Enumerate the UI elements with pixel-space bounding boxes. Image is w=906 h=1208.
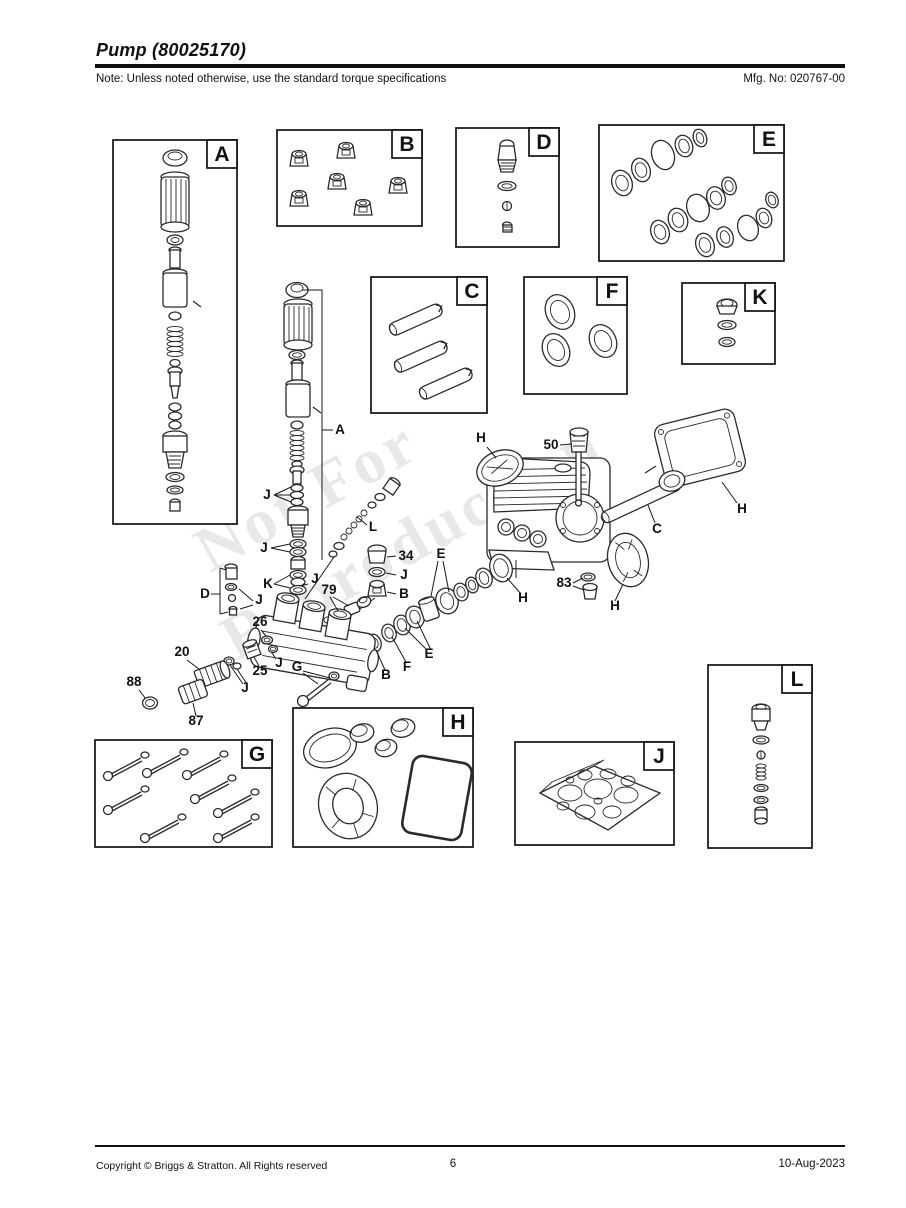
- callout-87: 87: [188, 713, 203, 728]
- inset-box-h: H: [293, 708, 473, 847]
- inset-letter-d: D: [536, 131, 551, 154]
- callout-E-lower: E: [424, 646, 433, 661]
- callout-K: K: [263, 576, 273, 591]
- callout-26: 26: [252, 614, 268, 629]
- inset-letter-k: K: [752, 286, 767, 309]
- callout-J-6: J: [275, 655, 283, 670]
- callout-H-seal-right: H: [610, 598, 620, 613]
- callout-88: 88: [126, 674, 142, 689]
- plug-kit-drawing: [717, 299, 737, 347]
- parts-diagram: Not For Reproduction A: [0, 0, 906, 1208]
- callout-J-3: J: [400, 567, 408, 582]
- callout-A: A: [335, 422, 345, 437]
- inset-box-f: F: [524, 277, 627, 394]
- inset-box-e: E: [599, 125, 784, 261]
- callout-J-1: J: [263, 487, 271, 502]
- inset-letter-f: F: [606, 280, 619, 303]
- catalog-page: Pump (80025170) Note: Unless noted other…: [0, 0, 906, 1208]
- callout-83: 83: [556, 575, 572, 590]
- callout-H-ovalcap: H: [476, 430, 486, 445]
- inset-letter-h: H: [450, 711, 465, 734]
- crankshaft-rod-drawing: [599, 466, 687, 525]
- footer-page-number: 6: [0, 1158, 906, 1170]
- inset-box-j: J: [515, 742, 674, 845]
- inset-letter-j: J: [653, 745, 665, 768]
- callout-B-1: B: [399, 586, 409, 601]
- callout-H-seal-left: H: [518, 590, 528, 605]
- callout-D: D: [200, 586, 210, 601]
- drain-plug-83-drawing: [581, 573, 597, 599]
- callout-J-4: J: [311, 571, 319, 586]
- callout-H-coverplate: H: [737, 501, 747, 516]
- callout-F: F: [403, 659, 411, 674]
- inset-letter-g: G: [249, 743, 265, 766]
- callout-G: G: [292, 659, 303, 674]
- inset-letter-l: L: [791, 668, 804, 691]
- inset-box-l: L: [708, 665, 812, 848]
- callout-34: 34: [398, 548, 414, 563]
- callout-79: 79: [321, 582, 336, 597]
- callout-50: 50: [543, 437, 558, 452]
- callout-20: 20: [174, 644, 189, 659]
- footer-date: 10-Aug-2023: [779, 1158, 846, 1170]
- footer-rule: [95, 1145, 845, 1147]
- callout-B-2: B: [381, 667, 391, 682]
- callout-L: L: [369, 519, 377, 534]
- callout-J-7: J: [241, 680, 249, 695]
- inset-box-c: C: [371, 277, 487, 413]
- unloader-assembly-drawing: [284, 283, 321, 595]
- inset-letter-e: E: [762, 128, 776, 151]
- inset-letter-a: A: [214, 143, 229, 166]
- inset-box-b: B: [277, 130, 422, 226]
- inset-box-k: K: [682, 283, 775, 364]
- callout-25: 25: [252, 663, 268, 678]
- inset-box-g: G: [95, 740, 272, 847]
- inset-box-d: D: [456, 128, 559, 247]
- inset-box-a: A: [113, 140, 237, 524]
- callout-J-5: J: [255, 592, 263, 607]
- inset-letter-b: B: [399, 133, 414, 156]
- callout-C: C: [652, 521, 662, 536]
- inset-letter-c: C: [464, 280, 479, 303]
- callout-E-upper: E: [436, 546, 445, 561]
- callout-J-2: J: [260, 540, 268, 555]
